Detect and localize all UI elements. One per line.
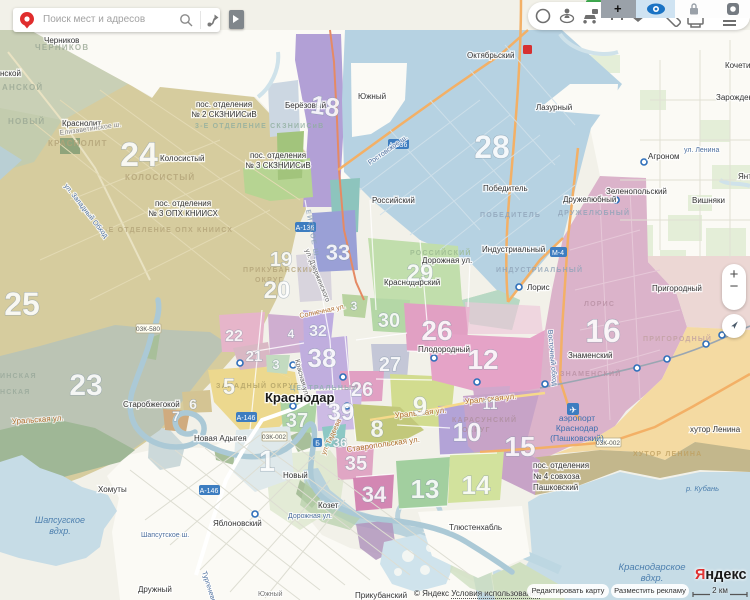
svg-text:33: 33 — [326, 240, 350, 265]
svg-text:Южный: Южный — [358, 92, 386, 101]
svg-text:аэропорт: аэропорт — [559, 413, 595, 423]
svg-text:Козет: Козет — [318, 501, 339, 510]
svg-text:27: 27 — [379, 354, 401, 376]
svg-text:30: 30 — [378, 310, 400, 332]
svg-text:пос. отделения: пос. отделения — [196, 100, 252, 109]
svg-text:ул. Ленина: ул. Ленина — [684, 147, 719, 154]
svg-text:КОЛОСИСТЫЙ: КОЛОСИСТЫЙ — [125, 173, 195, 182]
svg-text:6: 6 — [189, 396, 197, 412]
svg-text:вдхр.: вдхр. — [641, 573, 664, 584]
svg-text:пос. отделения: пос. отделения — [155, 199, 211, 208]
svg-text:4: 4 — [288, 327, 295, 341]
svg-text:22: 22 — [225, 328, 243, 345]
svg-text:Кочети: Кочети — [725, 61, 750, 70]
svg-text:5: 5 — [223, 374, 235, 399]
svg-text:29: 29 — [407, 260, 434, 287]
svg-text:3: 3 — [272, 357, 279, 372]
svg-text:вдхр.: вдхр. — [49, 526, 70, 536]
svg-text:ПРИГОРОДНЫЙ: ПРИГОРОДНЫЙ — [643, 334, 712, 343]
svg-text:32: 32 — [309, 323, 327, 340]
svg-text:КРАСНОЛИТ: КРАСНОЛИТ — [48, 139, 108, 148]
svg-text:34: 34 — [362, 482, 387, 507]
svg-text:26: 26 — [351, 379, 373, 401]
svg-text:ЗНАМЕНСКИЙ: ЗНАМЕНСКИЙ — [560, 369, 621, 378]
svg-text:12: 12 — [467, 344, 498, 375]
svg-text:3: 3 — [351, 299, 358, 313]
svg-text:26: 26 — [421, 315, 452, 346]
svg-text:3-Е ОТДЕЛЕНИЕ ОПХ КНИИСХ: 3-Е ОТДЕЛЕНИЕ ОПХ КНИИСХ — [100, 227, 233, 234]
svg-text:35: 35 — [345, 453, 367, 475]
svg-text:пос. отделения: пос. отделения — [250, 151, 306, 160]
svg-text:18: 18 — [309, 89, 342, 123]
svg-text:Российский: Российский — [372, 196, 415, 205]
svg-text:Новая Адыгея: Новая Адыгея — [194, 434, 247, 443]
svg-text:ИНСКАЯ: ИНСКАЯ — [0, 373, 37, 380]
svg-text:№ 4 совхоза: № 4 совхоза — [533, 472, 580, 481]
svg-text:21: 21 — [246, 348, 263, 365]
svg-text:Краснодар: Краснодар — [265, 390, 334, 405]
svg-text:Октябрьский: Октябрьский — [467, 51, 514, 60]
svg-text:36: 36 — [333, 435, 347, 450]
svg-text:Новый: Новый — [283, 471, 308, 480]
svg-text:Лазурный: Лазурный — [536, 103, 572, 112]
svg-text:38: 38 — [308, 343, 337, 373]
svg-text:хутор Ленина: хутор Ленина — [690, 425, 741, 434]
svg-text:20: 20 — [264, 277, 291, 304]
svg-text:Колосистый: Колосистый — [160, 154, 205, 163]
svg-text:25: 25 — [4, 286, 40, 322]
svg-text:37: 37 — [286, 410, 308, 432]
svg-text:Индустриальный: Индустриальный — [482, 245, 545, 254]
svg-text:24: 24 — [120, 136, 158, 174]
svg-text:Плодородный: Плодородный — [418, 345, 470, 354]
svg-text:03К-002: 03К-002 — [262, 434, 286, 441]
svg-text:Дружелюбный: Дружелюбный — [563, 195, 616, 204]
svg-text:3-Е ОТДЕЛЕНИЕ СКЗНИИСиВ: 3-Е ОТДЕЛЕНИЕ СКЗНИИСиВ — [195, 123, 324, 130]
svg-text:ХУТОР ЛЕНИНА: ХУТОР ЛЕНИНА — [633, 451, 702, 458]
svg-text:Дорожная ул.: Дорожная ул. — [288, 513, 332, 520]
svg-text:нской: нской — [0, 69, 21, 78]
svg-text:Шапсугское: Шапсугское — [35, 515, 85, 525]
svg-text:М-4: М-4 — [552, 250, 564, 257]
svg-text:НСКАЯ: НСКАЯ — [0, 389, 30, 396]
svg-text:ЛОРИС: ЛОРИС — [584, 301, 615, 308]
svg-text:Пригородный: Пригородный — [652, 284, 702, 293]
svg-text:Дружный: Дружный — [138, 585, 172, 594]
svg-text:Зарожден: Зарожден — [716, 93, 750, 102]
svg-text:№ 2 СКЗНИИСиВ: № 2 СКЗНИИСиВ — [191, 110, 257, 119]
svg-text:13: 13 — [411, 474, 440, 504]
svg-text:03К-580: 03К-580 — [136, 326, 160, 333]
svg-text:Тлюстенхабль: Тлюстенхабль — [449, 523, 502, 532]
svg-text:15: 15 — [504, 431, 535, 462]
svg-text:ДРУЖЕЛЮБНЫЙ: ДРУЖЕЛЮБНЫЙ — [558, 208, 630, 217]
svg-text:16: 16 — [585, 313, 621, 349]
svg-text:11: 11 — [483, 396, 498, 412]
svg-text:39: 39 — [328, 399, 355, 426]
svg-text:Агроном: Агроном — [648, 152, 680, 161]
svg-text:№ 3 СКЗНИИСиВ: № 3 СКЗНИИСиВ — [245, 161, 311, 170]
svg-text:Победитель: Победитель — [483, 184, 528, 193]
svg-text:Черников: Черников — [44, 36, 79, 45]
svg-text:Янта: Янта — [738, 172, 750, 181]
svg-text:Прикубанский: Прикубанский — [355, 591, 407, 600]
svg-text:А-146: А-146 — [237, 415, 256, 422]
svg-text:19: 19 — [270, 249, 292, 271]
svg-text:Краснодарское: Краснодарское — [618, 562, 685, 573]
svg-text:10: 10 — [453, 417, 482, 447]
svg-text:Хомуты: Хомуты — [98, 485, 127, 494]
svg-text:1: 1 — [259, 445, 276, 478]
svg-text:28: 28 — [474, 129, 510, 165]
svg-text:Знаменский: Знаменский — [568, 351, 613, 360]
svg-text:р. Кубань: р. Кубань — [685, 484, 719, 493]
svg-text:Шапсутское ш.: Шапсутское ш. — [141, 532, 189, 539]
svg-text:Вишняки: Вишняки — [692, 196, 725, 205]
svg-text:ИНДУСТРИАЛЬНЫЙ: ИНДУСТРИАЛЬНЫЙ — [496, 265, 583, 274]
svg-text:Яблоновский: Яблоновский — [213, 519, 262, 528]
svg-text:пос. отделения: пос. отделения — [533, 461, 589, 470]
svg-text:Пашковский: Пашковский — [533, 483, 578, 492]
svg-text:14: 14 — [462, 470, 491, 500]
svg-text:7: 7 — [172, 408, 180, 424]
svg-text:ПОБЕДИТЕЛЬ: ПОБЕДИТЕЛЬ — [480, 212, 541, 219]
svg-text:А-146: А-146 — [200, 488, 219, 495]
svg-text:23: 23 — [69, 369, 102, 402]
svg-text:Б: Б — [315, 441, 320, 448]
svg-text:Краснодар: Краснодар — [556, 423, 599, 433]
svg-text:Лорис: Лорис — [527, 283, 550, 292]
svg-text:(Пашковский): (Пашковский) — [550, 433, 604, 443]
svg-text:9: 9 — [413, 391, 427, 421]
svg-text:№ 3 ОПХ КНИИСХ: № 3 ОПХ КНИИСХ — [148, 209, 218, 218]
svg-text:Южный: Южный — [258, 590, 283, 598]
svg-text:8: 8 — [370, 416, 383, 443]
svg-text:АНСКОЙ: АНСКОЙ — [2, 83, 43, 92]
svg-text:НОВЫЙ: НОВЫЙ — [8, 117, 45, 126]
